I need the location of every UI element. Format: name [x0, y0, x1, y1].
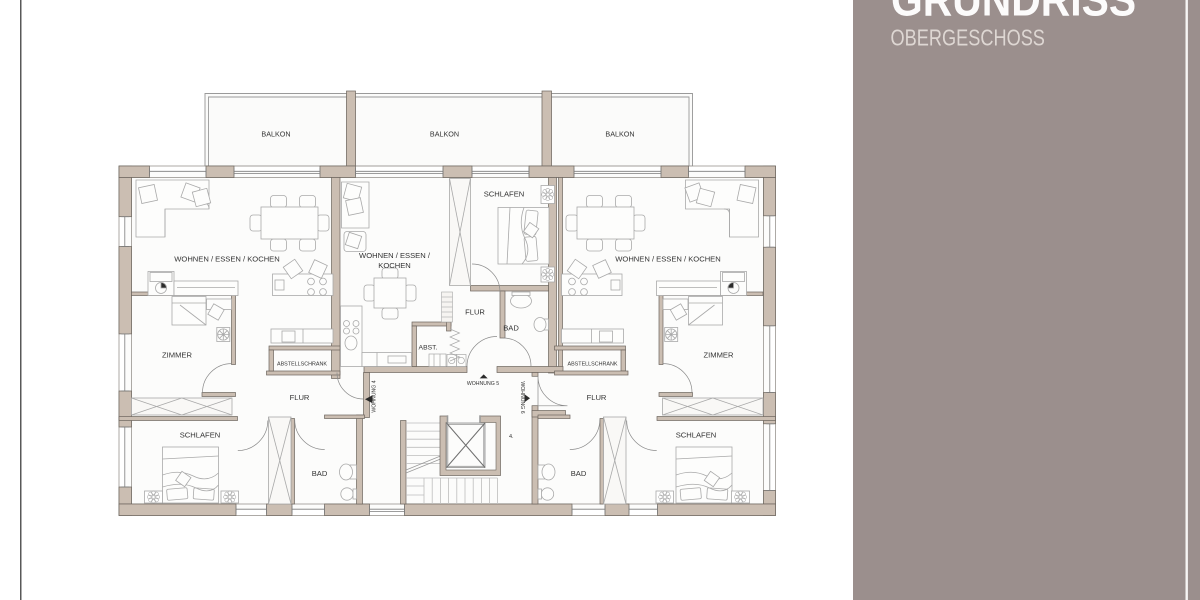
- svg-text:BALKON: BALKON: [261, 130, 290, 139]
- svg-text:WOHNEN / ESSEN / KOCHEN: WOHNEN / ESSEN / KOCHEN: [615, 255, 720, 264]
- svg-text:OBERGESCHOSS: OBERGESCHOSS: [891, 26, 1045, 52]
- svg-text:BALKON: BALKON: [430, 130, 459, 139]
- svg-text:BALKON: BALKON: [605, 130, 634, 139]
- svg-text:GRUNDRISS: GRUNDRISS: [891, 0, 1136, 26]
- svg-text:FLUR: FLUR: [587, 393, 607, 402]
- svg-text:ABST.: ABST.: [419, 345, 438, 352]
- svg-text:ABSTELLSCHRANK: ABSTELLSCHRANK: [277, 362, 327, 368]
- svg-text:ZIMMER: ZIMMER: [704, 351, 734, 360]
- svg-text:FLUR: FLUR: [290, 393, 310, 402]
- svg-text:WOHNUNG 5: WOHNUNG 5: [467, 381, 499, 387]
- svg-text:ZIMMER: ZIMMER: [162, 351, 192, 360]
- svg-text:4.: 4.: [509, 434, 514, 440]
- svg-text:ABSTELLSCHRANK: ABSTELLSCHRANK: [567, 362, 617, 368]
- svg-text:SCHLAFEN: SCHLAFEN: [676, 431, 717, 440]
- svg-text:BAD: BAD: [503, 324, 519, 333]
- svg-text:BAD: BAD: [571, 469, 587, 478]
- svg-text:KOCHEN: KOCHEN: [378, 261, 411, 270]
- svg-text:FLUR: FLUR: [465, 308, 485, 317]
- svg-text:SCHLAFEN: SCHLAFEN: [484, 190, 525, 199]
- svg-text:WOHNEN / ESSEN / KOCHEN: WOHNEN / ESSEN / KOCHEN: [174, 255, 279, 264]
- svg-text:WOHNUNG 6: WOHNUNG 6: [519, 381, 525, 413]
- svg-text:BAD: BAD: [312, 469, 328, 478]
- svg-text:SCHLAFEN: SCHLAFEN: [180, 431, 221, 440]
- svg-text:WOHNEN / ESSEN /: WOHNEN / ESSEN /: [359, 251, 431, 260]
